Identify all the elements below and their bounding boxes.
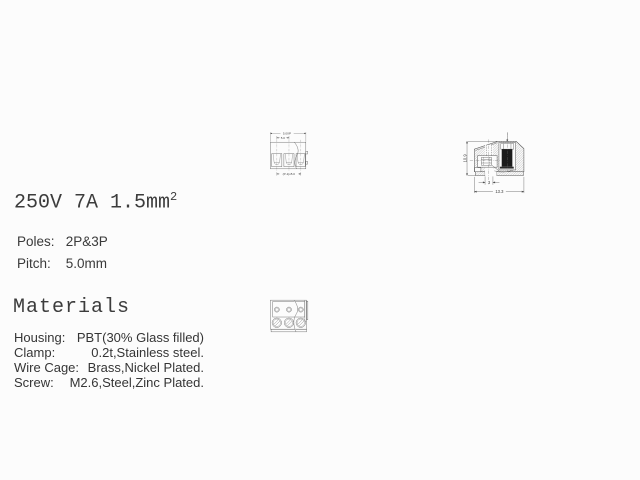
wire-entry-deck [273, 301, 305, 317]
wire-hole-1 [274, 307, 279, 312]
housing-base-strip [271, 329, 306, 332]
mounting-tab [306, 161, 308, 164]
material-label: Screw: [14, 375, 54, 390]
materials-title: Materials [13, 296, 130, 319]
dim-depth-label: 13.3 [495, 189, 504, 194]
mounting-tab [306, 151, 308, 154]
materials-list: Housing: PBT(30% Glass filled) Clamp: 0.… [14, 330, 204, 390]
screw-head-1 [272, 318, 281, 327]
screw-body [502, 149, 513, 167]
dim-span-label: (P-1)x5.0 [283, 172, 296, 176]
material-value: M2.6,Steel,Zinc Plated. [54, 375, 204, 390]
material-value: Brass,Nickel Plated. [79, 360, 204, 375]
rating-value: 250V 7A 1.5mm [14, 192, 170, 215]
wire-hole-3 [298, 307, 303, 312]
front-view-drawing: 5.0XP 5.0 [265, 80, 400, 230]
front-dim-pitch: 5.0 [277, 136, 289, 140]
material-row-wire-cage: Wire Cage: Brass,Nickel Plated. [14, 360, 204, 375]
side-view-drawing: 10.9 3 13.3 [455, 88, 640, 238]
top-view-drawing [265, 256, 400, 376]
break-line [294, 142, 298, 169]
side-section-body [474, 141, 523, 175]
material-row-screw: Screw: M2.6,Steel,Zinc Plated. [14, 375, 204, 390]
front-dim-span: (P-1)x5.0 [277, 172, 301, 176]
datasheet-page: 250V 7A 1.5mm2 Poles: 2P&3P Pitch: 5.0mm… [0, 0, 640, 480]
material-label: Clamp: [14, 345, 55, 360]
rating-superscript: 2 [170, 190, 177, 204]
screw-head-2 [284, 318, 293, 327]
dim-total-width-label: 5.0XP [283, 131, 291, 135]
left-notch [475, 168, 481, 172]
dim-height-label: 10.9 [463, 154, 468, 163]
terminal-window-3 [296, 154, 305, 167]
side-tab [307, 301, 308, 320]
material-label: Housing: [14, 330, 65, 345]
base-foot-right [497, 172, 524, 176]
material-value: PBT(30% Glass filled) [65, 330, 204, 345]
material-row-clamp: Clamp: 0.2t,Stainless steel. [14, 345, 204, 360]
pitch-label: Pitch: [17, 256, 62, 271]
wire-hole-2 [286, 307, 291, 312]
side-dim-foot: 3 [479, 176, 500, 185]
dim-pitch-label: 5.0 [281, 136, 286, 140]
material-label: Wire Cage: [14, 360, 79, 375]
base-foot-left [475, 172, 485, 176]
screw-head-3 [296, 318, 305, 327]
front-dim-total-width: 5.0XP [270, 131, 305, 141]
material-value: 0.2t,Stainless steel. [55, 345, 204, 360]
poles-value: 2P&3P [66, 234, 108, 249]
poles-row: Poles: 2P&3P [17, 234, 108, 249]
pitch-value: 5.0mm [66, 256, 107, 271]
rating-text: 250V 7A 1.5mm2 [14, 190, 177, 215]
clamp-plate [500, 167, 514, 169]
pitch-row: Pitch: 5.0mm [17, 256, 107, 271]
material-row-housing: Housing: PBT(30% Glass filled) [14, 330, 204, 345]
poles-label: Poles: [17, 234, 62, 249]
side-dim-depth: 13.3 [474, 177, 523, 194]
front-housing-body [270, 140, 307, 171]
